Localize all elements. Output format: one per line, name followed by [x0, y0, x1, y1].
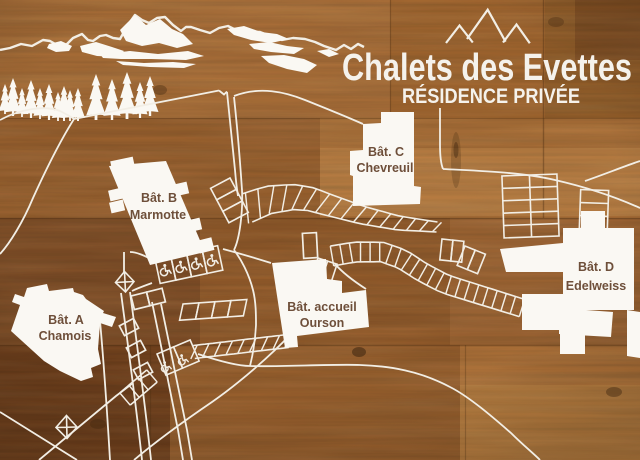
- svg-text:Marmotte: Marmotte: [130, 208, 186, 222]
- svg-text:Bât. A: Bât. A: [48, 313, 84, 327]
- svg-text:RÉSIDENCE PRIVÉE: RÉSIDENCE PRIVÉE: [402, 85, 580, 108]
- svg-text:Chalets des Evettes: Chalets des Evettes: [342, 47, 632, 89]
- svg-text:Ourson: Ourson: [300, 316, 344, 330]
- svg-text:Chamois: Chamois: [39, 329, 92, 343]
- svg-text:Chevreuil: Chevreuil: [357, 161, 414, 175]
- svg-text:Bât. accueil: Bât. accueil: [287, 300, 356, 314]
- svg-text:Bât. D: Bât. D: [578, 260, 614, 274]
- svg-text:Bât. B: Bât. B: [141, 191, 177, 205]
- svg-text:Edelweiss: Edelweiss: [566, 279, 626, 293]
- svg-text:Bât. C: Bât. C: [368, 145, 404, 159]
